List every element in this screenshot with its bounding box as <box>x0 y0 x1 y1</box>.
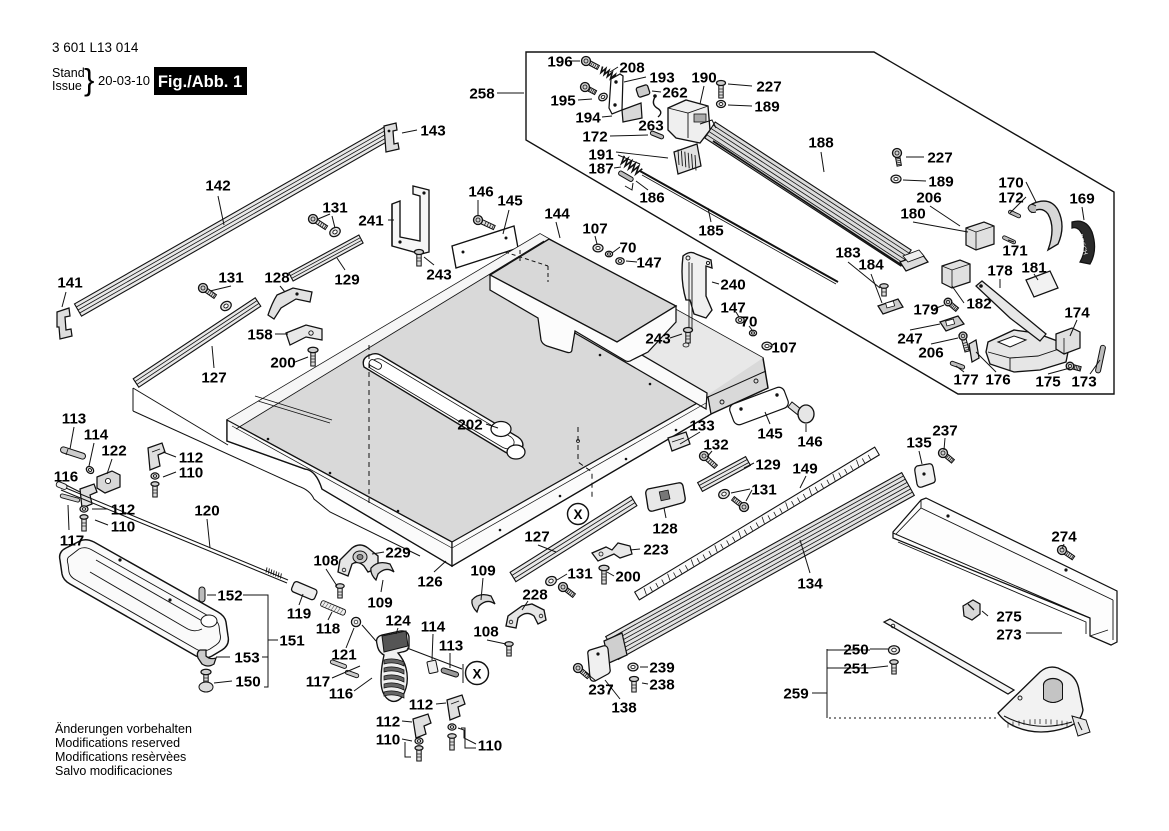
svg-text:227: 227 <box>756 79 781 96</box>
svg-text:152: 152 <box>217 588 242 605</box>
svg-text:176: 176 <box>985 372 1010 389</box>
svg-text:131: 131 <box>567 566 593 583</box>
svg-text:223: 223 <box>643 542 668 559</box>
svg-text:174: 174 <box>1064 305 1090 322</box>
svg-text:186: 186 <box>639 190 664 207</box>
svg-text:196: 196 <box>547 54 572 71</box>
svg-text:172: 172 <box>582 129 607 146</box>
svg-text:153: 153 <box>234 650 259 667</box>
svg-text:138: 138 <box>611 700 636 717</box>
svg-text:70: 70 <box>620 240 637 257</box>
svg-text:143: 143 <box>420 123 445 140</box>
svg-text:149: 149 <box>792 461 817 478</box>
svg-text:110: 110 <box>179 465 204 482</box>
svg-text:258: 258 <box>469 86 494 103</box>
svg-text:171: 171 <box>1002 243 1028 260</box>
svg-text:169: 169 <box>1069 191 1094 208</box>
svg-text:128: 128 <box>264 270 289 287</box>
svg-text:117: 117 <box>60 533 85 550</box>
svg-text:274: 274 <box>1051 529 1077 546</box>
svg-text:134: 134 <box>797 576 823 593</box>
svg-text:251: 251 <box>843 661 869 678</box>
svg-text:127: 127 <box>524 529 549 546</box>
svg-text:Änderungen vorbehalten: Änderungen vorbehalten <box>55 722 192 736</box>
svg-text:119: 119 <box>287 606 312 623</box>
svg-text:121: 121 <box>331 647 357 664</box>
svg-text:237: 237 <box>588 682 613 699</box>
svg-text:70: 70 <box>741 314 758 331</box>
svg-text:131: 131 <box>322 200 348 217</box>
svg-text:229: 229 <box>385 545 410 562</box>
svg-text:185: 185 <box>698 223 724 240</box>
svg-text:240: 240 <box>720 277 745 294</box>
svg-text:3 601 L13 014: 3 601 L13 014 <box>52 40 139 55</box>
svg-text:113: 113 <box>439 638 464 655</box>
svg-text:120: 120 <box>194 503 219 520</box>
svg-text:108: 108 <box>473 624 498 641</box>
svg-text:131: 131 <box>218 270 244 287</box>
svg-text:147: 147 <box>636 255 661 272</box>
svg-text:146: 146 <box>468 184 493 201</box>
svg-text:181: 181 <box>1021 260 1047 277</box>
svg-text:179: 179 <box>913 302 938 319</box>
svg-text:175: 175 <box>1035 374 1061 391</box>
svg-text:X: X <box>472 667 481 682</box>
svg-text:132: 132 <box>703 437 728 454</box>
svg-text:144: 144 <box>544 206 570 223</box>
svg-text:131: 131 <box>751 482 777 499</box>
svg-text:158: 158 <box>247 327 272 344</box>
svg-text:107: 107 <box>771 340 796 357</box>
svg-text:X: X <box>573 507 582 522</box>
svg-text:228: 228 <box>522 587 547 604</box>
svg-text:275: 275 <box>996 609 1022 626</box>
svg-text:129: 129 <box>334 272 359 289</box>
svg-text:238: 238 <box>649 677 674 694</box>
svg-text:243: 243 <box>426 267 451 284</box>
svg-text:243: 243 <box>645 331 670 348</box>
svg-text:184: 184 <box>858 257 884 274</box>
svg-text:117: 117 <box>306 674 331 691</box>
svg-text:114: 114 <box>84 427 109 444</box>
svg-text:116: 116 <box>54 469 79 486</box>
svg-text:116: 116 <box>329 686 354 703</box>
svg-text:202: 202 <box>457 417 482 434</box>
svg-text:262: 262 <box>662 85 687 102</box>
svg-text:129: 129 <box>755 457 780 474</box>
svg-text:194: 194 <box>575 110 601 127</box>
svg-text:206: 206 <box>918 345 943 362</box>
svg-text:150: 150 <box>235 674 260 691</box>
svg-text:182: 182 <box>966 296 991 313</box>
svg-text:141: 141 <box>57 275 83 292</box>
svg-text:107: 107 <box>582 221 607 238</box>
svg-text:126: 126 <box>417 574 442 591</box>
svg-text:109: 109 <box>470 563 495 580</box>
svg-text:273: 273 <box>996 627 1021 644</box>
svg-text:263: 263 <box>638 118 663 135</box>
svg-text:206: 206 <box>916 190 941 207</box>
svg-text:118: 118 <box>316 621 341 638</box>
svg-text:239: 239 <box>649 660 674 677</box>
svg-text:259: 259 <box>783 686 808 703</box>
svg-text:227: 227 <box>927 150 952 167</box>
svg-text:177: 177 <box>953 372 978 389</box>
svg-text:208: 208 <box>619 60 644 77</box>
svg-text:20-03-10: 20-03-10 <box>98 73 150 88</box>
svg-text:122: 122 <box>101 443 126 460</box>
svg-text:110: 110 <box>478 738 503 755</box>
svg-text:200: 200 <box>615 569 640 586</box>
svg-text:110: 110 <box>111 519 136 536</box>
svg-text:183: 183 <box>835 245 860 262</box>
svg-text:124: 124 <box>385 613 411 630</box>
svg-text:178: 178 <box>987 263 1012 280</box>
svg-text:189: 189 <box>928 174 953 191</box>
svg-text:}: } <box>84 62 94 97</box>
svg-text:109: 109 <box>367 595 392 612</box>
svg-text:146: 146 <box>797 434 822 451</box>
svg-text:135: 135 <box>906 435 932 452</box>
svg-text:112: 112 <box>409 697 434 714</box>
svg-text:Modifications resèrvèes: Modifications resèrvèes <box>55 750 186 764</box>
svg-text:Issue: Issue <box>52 79 82 93</box>
svg-text:200: 200 <box>270 355 295 372</box>
svg-text:145: 145 <box>757 426 783 443</box>
svg-text:128: 128 <box>652 521 677 538</box>
svg-text:241: 241 <box>358 213 384 230</box>
svg-text:114: 114 <box>421 619 446 636</box>
svg-text:108: 108 <box>313 553 338 570</box>
svg-text:187: 187 <box>588 161 613 178</box>
svg-text:237: 237 <box>932 423 957 440</box>
svg-text:142: 142 <box>205 178 230 195</box>
svg-text:113: 113 <box>62 411 87 428</box>
svg-text:250: 250 <box>843 642 868 659</box>
svg-text:172: 172 <box>998 190 1023 207</box>
svg-text:Salvo modificaciones: Salvo modificaciones <box>55 764 172 778</box>
svg-text:180: 180 <box>900 206 925 223</box>
svg-text:188: 188 <box>808 135 833 152</box>
svg-text:127: 127 <box>201 370 226 387</box>
svg-text:173: 173 <box>1071 374 1096 391</box>
svg-text:Stand: Stand <box>52 66 85 80</box>
svg-text:151: 151 <box>279 633 305 650</box>
svg-text:190: 190 <box>691 70 716 87</box>
svg-text:112: 112 <box>376 714 401 731</box>
svg-text:Fig./Abb. 1: Fig./Abb. 1 <box>158 73 242 91</box>
svg-text:195: 195 <box>550 93 576 110</box>
svg-text:Modifications reserved: Modifications reserved <box>55 736 180 750</box>
svg-text:145: 145 <box>497 193 523 210</box>
svg-text:189: 189 <box>754 99 779 116</box>
svg-text:110: 110 <box>376 732 401 749</box>
svg-text:112: 112 <box>111 502 136 519</box>
svg-text:133: 133 <box>689 418 714 435</box>
